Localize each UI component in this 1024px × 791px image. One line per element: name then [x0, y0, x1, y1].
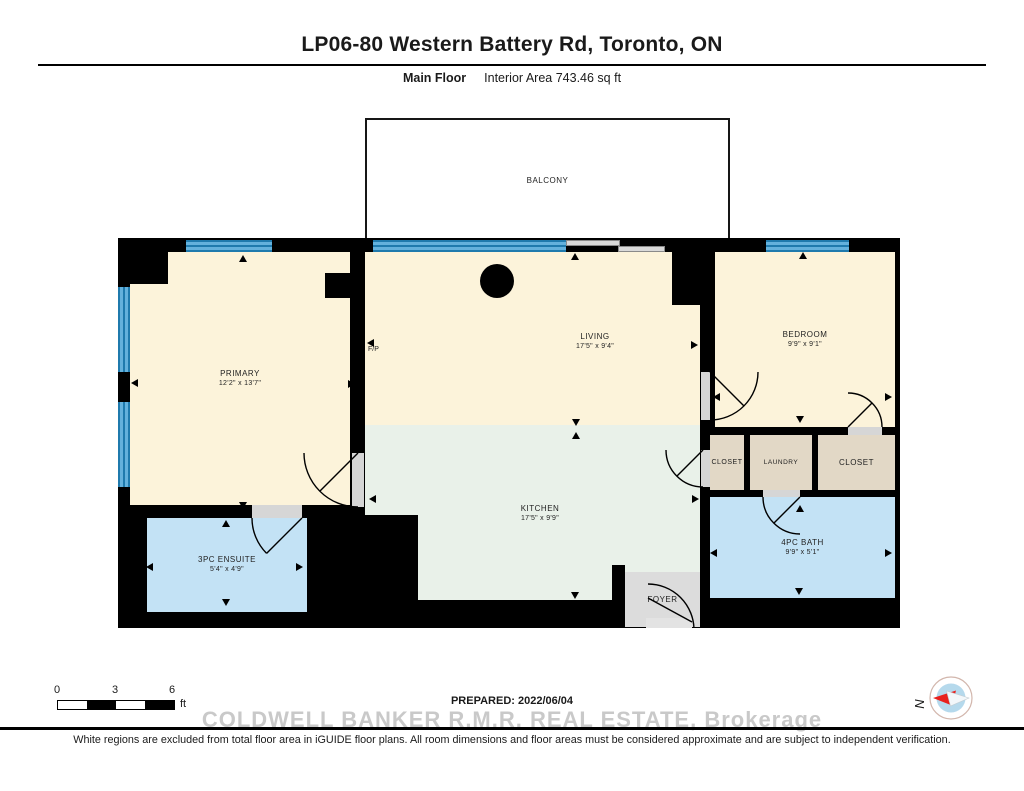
room-label-closet-left: CLOSET: [711, 459, 742, 466]
room-label-laundry: LAUNDRY: [764, 459, 798, 466]
compass-north-label: N: [912, 699, 927, 709]
window-primary-top: [186, 240, 272, 252]
measure-arrow: [222, 599, 230, 606]
measure-arrow: [796, 505, 804, 512]
floor-label: Main Floor: [403, 71, 466, 85]
measure-arrow: [691, 341, 698, 349]
page-title: LP06-80 Western Battery Rd, Toronto, ON: [0, 33, 1024, 57]
room-label-ensuite: 3PC ENSUITE 5'4" x 4'9": [198, 555, 256, 575]
door-gap-closet-right: [848, 427, 882, 435]
measure-arrow: [369, 495, 376, 503]
measure-arrow: [131, 379, 138, 387]
wall-notch-living: [672, 252, 712, 305]
door-gap-living-primary: [352, 453, 364, 507]
measure-arrow: [239, 255, 247, 262]
measure-arrow: [571, 253, 579, 260]
title-divider: [38, 64, 986, 66]
structural-column: [480, 264, 514, 298]
room-laundry: LAUNDRY: [750, 435, 812, 490]
fireplace-label: F/P: [368, 346, 379, 353]
measure-arrow: [239, 502, 247, 509]
room-living: [365, 252, 700, 425]
wall-notch-topleft: [118, 238, 168, 284]
measure-arrow: [571, 592, 579, 599]
room-label-primary: PRIMARY 12'2" x 13'7": [219, 369, 261, 389]
room-closet-left: CLOSET: [710, 435, 744, 490]
measure-arrow: [222, 520, 230, 527]
measure-arrow: [146, 563, 153, 571]
door-gap-bath: [763, 490, 800, 497]
room-balcony: BALCONY: [365, 118, 730, 242]
interior-area-label: Interior Area 743.46 sq ft: [484, 71, 621, 85]
room-label-kitchen: KITCHEN 17'5" x 9'9": [521, 504, 560, 524]
room-bath: 4PC BATH 9'9" x 5'1": [710, 497, 895, 598]
door-gap-bedroom: [701, 372, 710, 420]
balcony-slider-panel-inner: [618, 246, 665, 252]
room-label-bath: 4PC BATH 9'9" x 5'1": [781, 538, 824, 558]
room-primary: PRIMARY 12'2" x 13'7": [130, 252, 350, 505]
prepared-date: PREPARED: 2022/06/04: [0, 695, 1024, 707]
balcony-slider-panel-outer: [566, 240, 620, 246]
measure-arrow: [348, 380, 355, 388]
disclaimer-text: White regions are excluded from total fl…: [0, 734, 1024, 746]
room-bedroom: BEDROOM 9'9" x 9'1": [715, 252, 895, 427]
compass-icon: N: [897, 669, 993, 727]
room-ensuite: 3PC ENSUITE 5'4" x 4'9": [147, 518, 307, 612]
window-primary-left-upper: [118, 287, 130, 372]
measure-arrow: [885, 549, 892, 557]
wall-foyer-left: [612, 565, 625, 628]
room-label-living: LIVING 17'5" x 9'4": [576, 332, 614, 352]
door-gap-primary-ensuite: [252, 505, 302, 518]
measure-arrow: [710, 549, 717, 557]
footer-divider: [0, 727, 1024, 730]
measure-arrow: [713, 393, 720, 401]
measure-arrow: [799, 252, 807, 259]
fireplace-block: [325, 273, 363, 298]
measure-arrow: [296, 563, 303, 571]
room-label-bedroom: BEDROOM 9'9" x 9'1": [783, 330, 828, 350]
door-gap-kitchen-hall: [701, 450, 710, 487]
measure-arrow: [796, 416, 804, 423]
measure-arrow: [692, 495, 699, 503]
measure-arrow: [572, 419, 580, 426]
floor-subtitle: Main FloorInterior Area 743.46 sq ft: [0, 71, 1024, 85]
window-primary-left-lower: [118, 402, 130, 487]
room-closet-right: CLOSET: [818, 435, 895, 490]
floor-plan: PRIMARY 12'2" x 13'7" BEDROOM 9'9" x 9'1…: [118, 238, 900, 628]
door-gap-entry: [646, 618, 692, 628]
wall-block-kitchen: [365, 515, 418, 600]
floor-plan-page: LP06-80 Western Battery Rd, Toronto, ON …: [0, 0, 1024, 791]
measure-arrow: [367, 339, 374, 347]
window-living-top: [373, 240, 566, 252]
measure-arrow: [572, 432, 580, 439]
measure-arrow: [885, 393, 892, 401]
measure-arrow: [795, 588, 803, 595]
window-bedroom-top: [766, 240, 849, 252]
room-label-balcony: BALCONY: [527, 176, 569, 185]
room-label-foyer: FOYER: [647, 595, 677, 604]
room-label-closet-right: CLOSET: [839, 458, 874, 467]
